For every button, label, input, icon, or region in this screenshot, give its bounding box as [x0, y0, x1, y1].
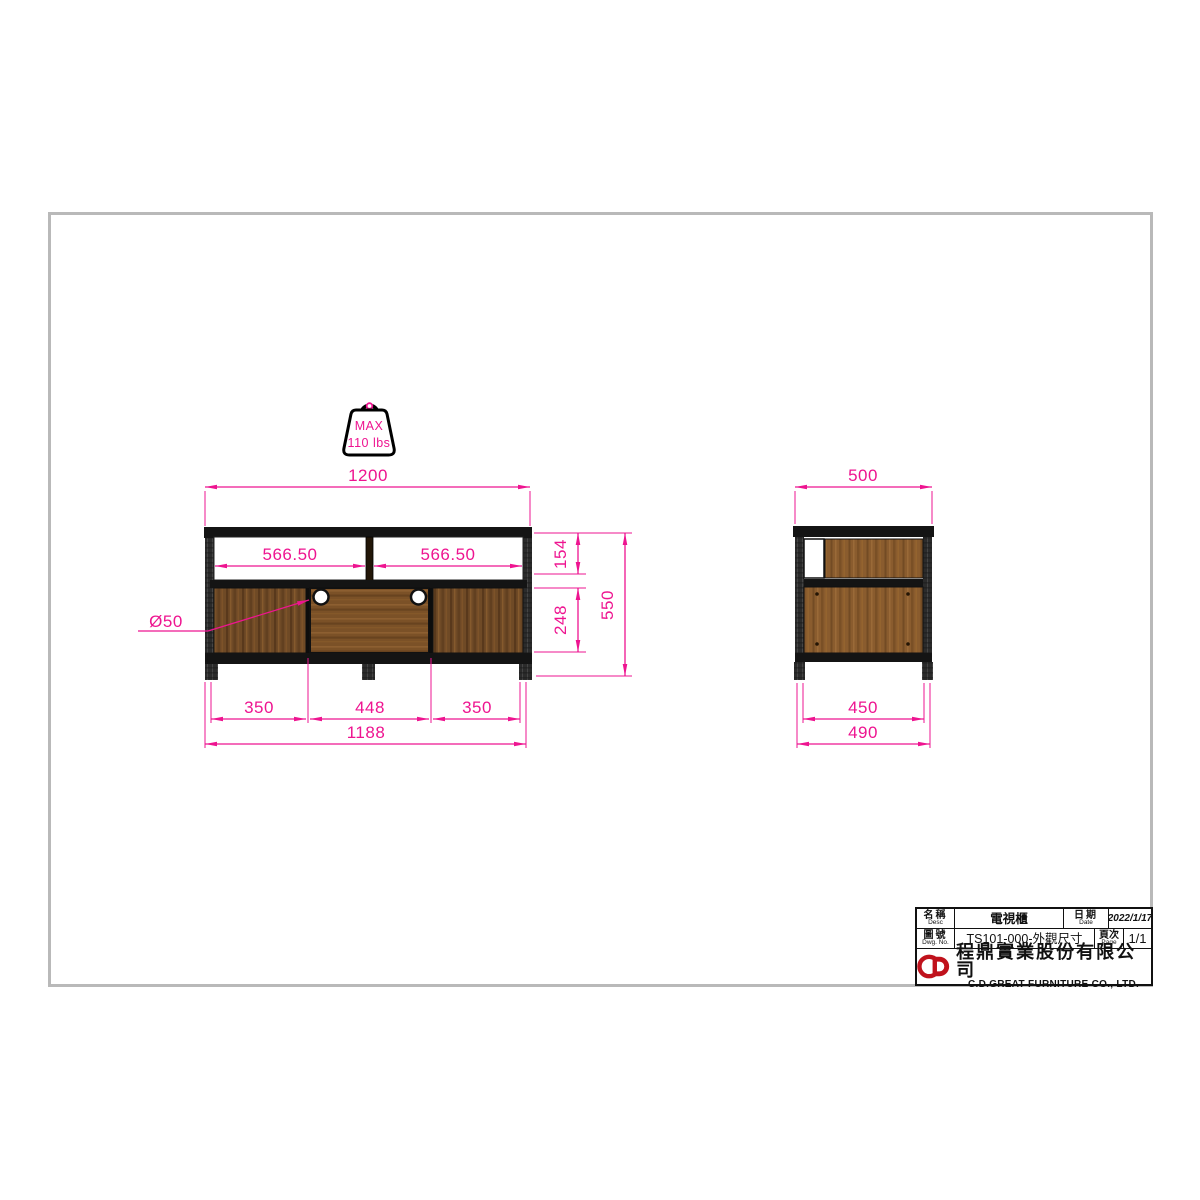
front-left-post [205, 538, 214, 653]
cad-drawing: MAX 110 lbs 1200 566.50 566.50 Ø50 [0, 0, 1200, 1200]
side-open-slot [804, 539, 824, 578]
side-mid-rail [804, 579, 923, 587]
front-bottom-rail [205, 653, 532, 664]
dim-door-height: 248 [551, 605, 570, 635]
dim-front-top-width: 1200 [348, 466, 388, 485]
dim-bottom-left: 350 [244, 698, 274, 717]
company-name-zh: 程鼎實業股份有限公司 [956, 943, 1151, 979]
dim-hole-diameter: Ø50 [149, 612, 183, 631]
date-label-cell: 日期 Date [1064, 909, 1109, 929]
cable-hole-right [411, 590, 426, 605]
dim-shelf-height: 154 [551, 539, 570, 569]
side-leg-right [922, 662, 933, 680]
dim-bottom-center: 448 [355, 698, 385, 717]
side-view [793, 526, 934, 680]
screw-icon [815, 592, 819, 596]
side-leg-left [794, 662, 805, 680]
side-right-post [923, 537, 932, 662]
badge-handle-ring-icon [367, 403, 373, 409]
drawing-sheet-page: MAX 110 lbs 1200 566.50 566.50 Ø50 [0, 0, 1200, 1200]
front-leg-left [205, 664, 218, 680]
front-left-door [214, 588, 306, 653]
dim-side-inner-depth: 450 [848, 698, 878, 717]
front-view [204, 527, 532, 680]
front-door-gap-right [429, 588, 433, 653]
front-leg-right [519, 664, 532, 680]
dim-side-top-depth: 500 [848, 466, 878, 485]
dim-side-bottom-depth: 490 [848, 723, 878, 742]
screw-icon [906, 592, 910, 596]
screw-icon [906, 642, 910, 646]
dim-bottom-width: 1188 [347, 723, 386, 742]
company-name-en: C.D.GREAT FURNITURE CO., LTD. [968, 979, 1139, 990]
drawing-name: 電視櫃 [990, 913, 1028, 925]
name-label-cell: 名稱 Desc [917, 909, 955, 929]
dim-bottom-right: 350 [462, 698, 492, 717]
dim-shelf-right: 566.50 [421, 545, 476, 564]
cd-logo-icon [917, 953, 950, 980]
company-row: 程鼎實業股份有限公司 C.D.GREAT FURNITURE CO., LTD. [917, 949, 1151, 984]
side-left-post [795, 537, 804, 662]
dwgno-label-en: Dwg. No. [922, 940, 949, 946]
max-load-badge: MAX 110 lbs [344, 403, 395, 455]
name-value-cell: 電視櫃 [955, 909, 1064, 929]
cable-hole-left [314, 590, 329, 605]
badge-max-text: MAX [355, 419, 384, 433]
badge-weight-text: 110 lbs [348, 436, 391, 450]
front-right-post [523, 538, 532, 653]
side-lower-panel [804, 587, 923, 653]
drawing-date: 2022/1/17 [1109, 914, 1151, 924]
front-shelf-divider [366, 537, 373, 582]
front-leg-center [362, 664, 375, 680]
date-label-en: Date [1079, 920, 1093, 926]
dwgno-label-cell: 圖號 Dwg. No. [917, 929, 955, 949]
dim-total-height: 550 [598, 590, 617, 620]
company-name: 程鼎實業股份有限公司 C.D.GREAT FURNITURE CO., LTD. [956, 943, 1151, 990]
screw-icon [815, 642, 819, 646]
dim-shelf-left: 566.50 [263, 545, 318, 564]
side-bottom-rail [795, 653, 932, 662]
title-block: 名稱 Desc 電視櫃 日期 Date 2022/1/17 圖號 Dwg. No… [915, 907, 1153, 986]
name-label-en: Desc [928, 920, 943, 926]
date-value-cell: 2022/1/17 [1109, 909, 1151, 929]
front-mid-rail [210, 580, 527, 588]
front-right-door [433, 588, 523, 653]
side-upper-panel [825, 539, 923, 578]
front-top-slab [204, 527, 532, 538]
side-top-slab [793, 526, 934, 537]
